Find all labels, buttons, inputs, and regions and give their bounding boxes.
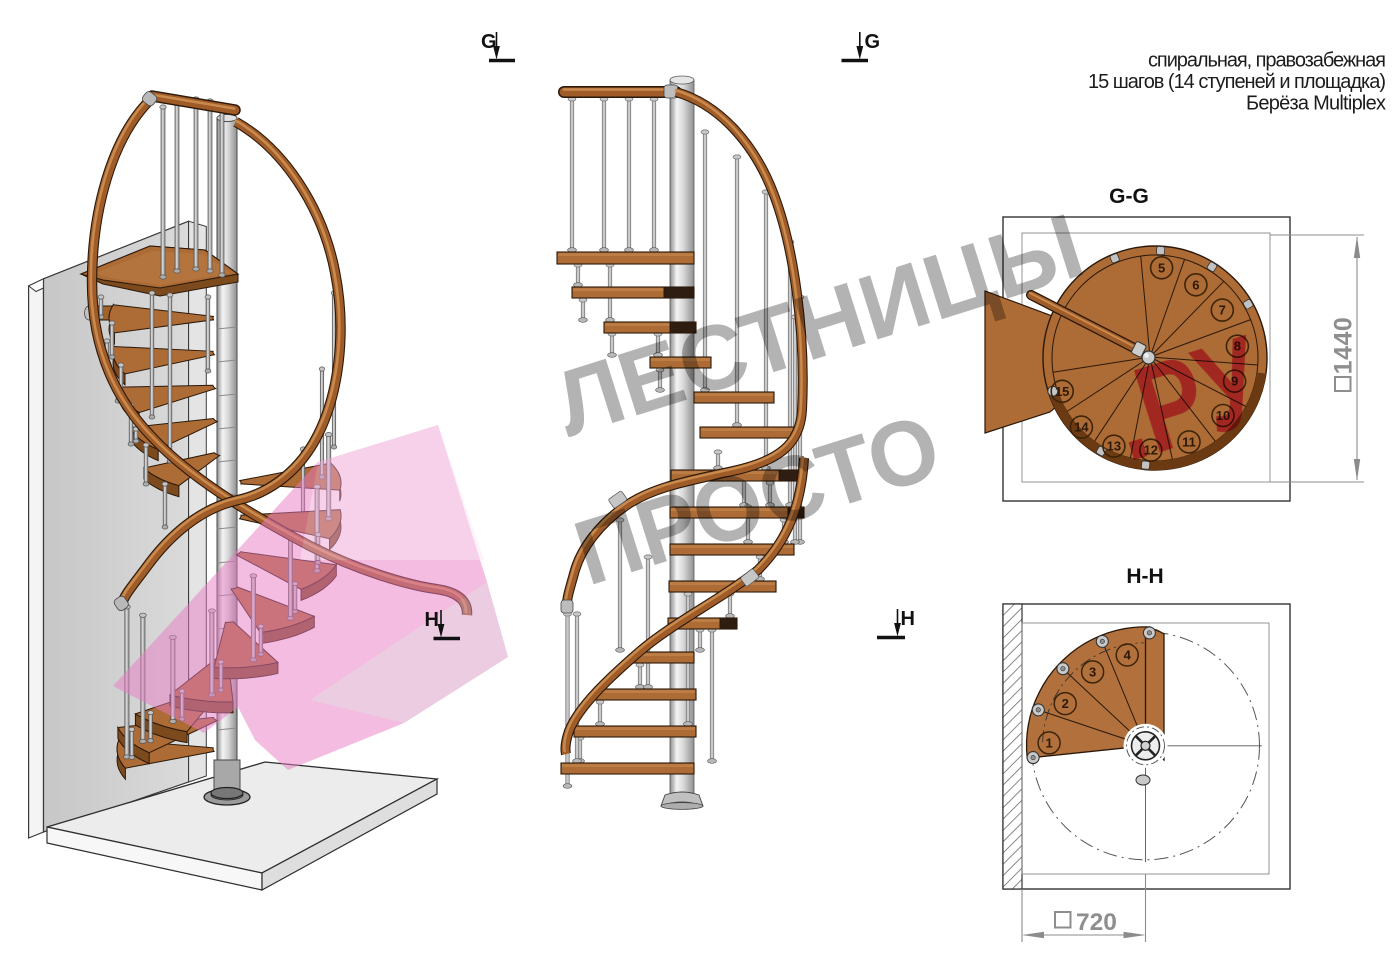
svg-text:3: 3	[1089, 664, 1096, 679]
svg-text:1440: 1440	[1330, 317, 1358, 375]
svg-text:G: G	[865, 31, 881, 53]
svg-text:Берёза Multiplex: Берёза Multiplex	[1246, 93, 1386, 115]
svg-text:15: 15	[1055, 384, 1069, 399]
svg-text:G-G: G-G	[1109, 185, 1149, 208]
svg-text:6: 6	[1192, 277, 1199, 292]
svg-text:H: H	[425, 609, 439, 631]
svg-text:13: 13	[1107, 439, 1121, 454]
svg-text:H-H: H-H	[1126, 565, 1163, 588]
svg-text:H: H	[901, 608, 915, 630]
svg-text:15 шагов (14 ступеней и площад: 15 шагов (14 ступеней и площадка)	[1088, 71, 1386, 93]
svg-text:4: 4	[1124, 648, 1132, 663]
svg-text:1: 1	[1045, 735, 1052, 750]
svg-text:5: 5	[1158, 260, 1165, 275]
svg-text:2: 2	[1062, 696, 1069, 711]
svg-text:спиральная, правозабежная: спиральная, правозабежная	[1148, 50, 1386, 72]
svg-text:720: 720	[1076, 909, 1117, 936]
svg-text:14: 14	[1074, 420, 1089, 435]
